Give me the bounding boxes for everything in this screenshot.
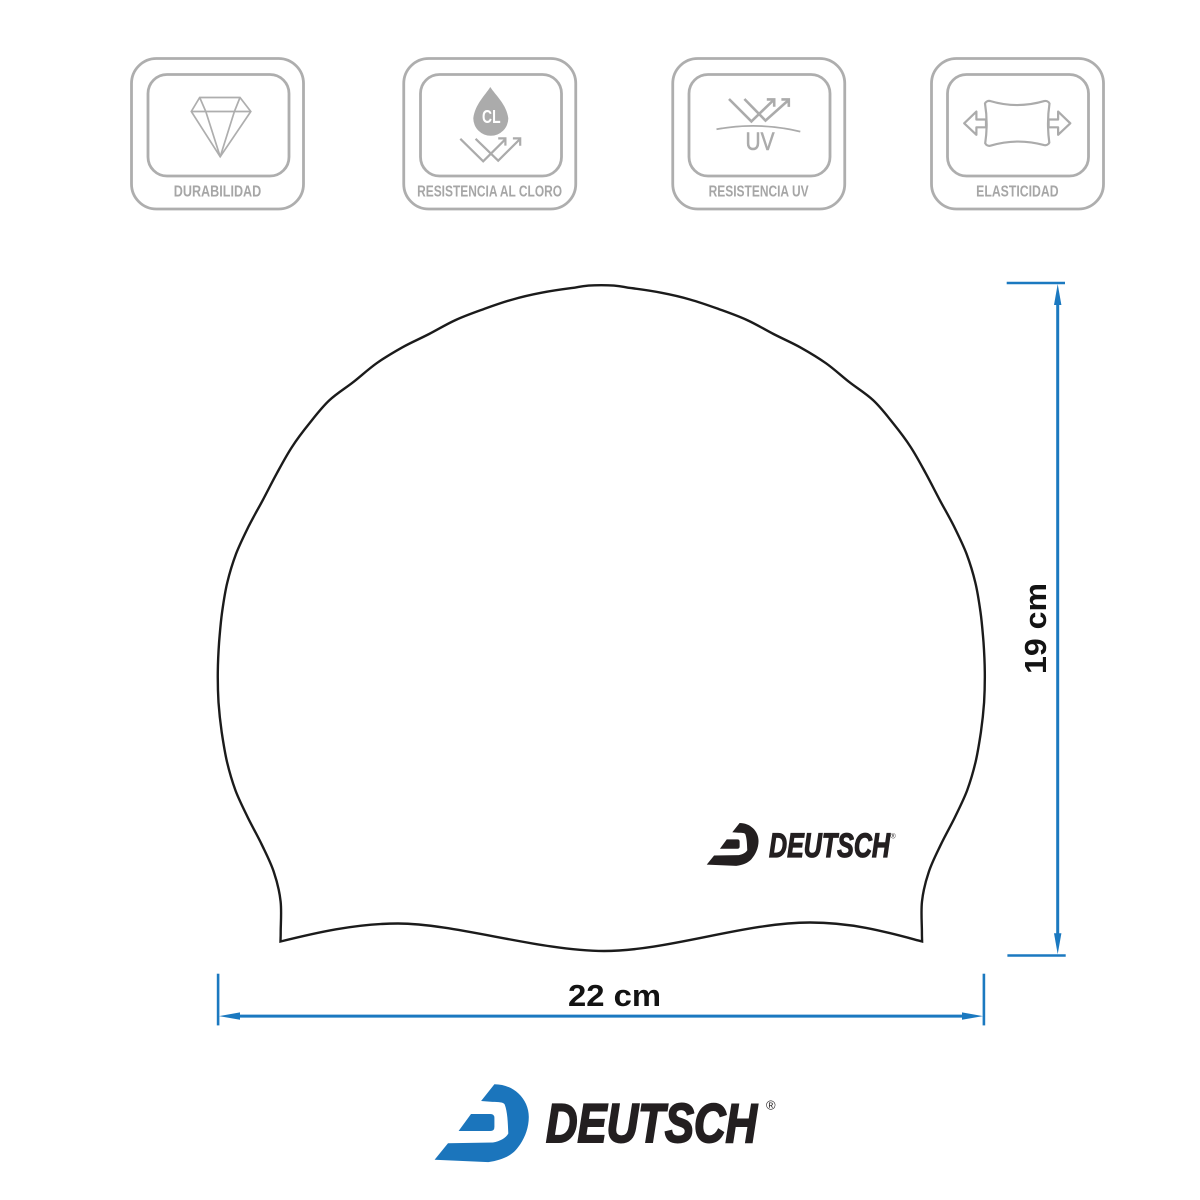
svg-text:DEUTSCH: DEUTSCH <box>546 1092 758 1154</box>
svg-text:®: ® <box>891 833 897 841</box>
svg-text:RESISTENCIA AL CLORO: RESISTENCIA AL CLORO <box>417 184 562 201</box>
svg-text:UV: UV <box>746 128 775 156</box>
svg-text:DEUTSCH: DEUTSCH <box>769 827 891 865</box>
svg-text:22 cm: 22 cm <box>568 978 661 1013</box>
svg-text:19 cm: 19 cm <box>1018 583 1053 674</box>
svg-text:ELASTICIDAD: ELASTICIDAD <box>976 184 1059 201</box>
svg-text:CL: CL <box>482 107 501 127</box>
svg-text:DURABILIDAD: DURABILIDAD <box>174 184 262 201</box>
svg-text:RESISTENCIA UV: RESISTENCIA UV <box>709 184 810 201</box>
svg-text:®: ® <box>766 1098 776 1113</box>
